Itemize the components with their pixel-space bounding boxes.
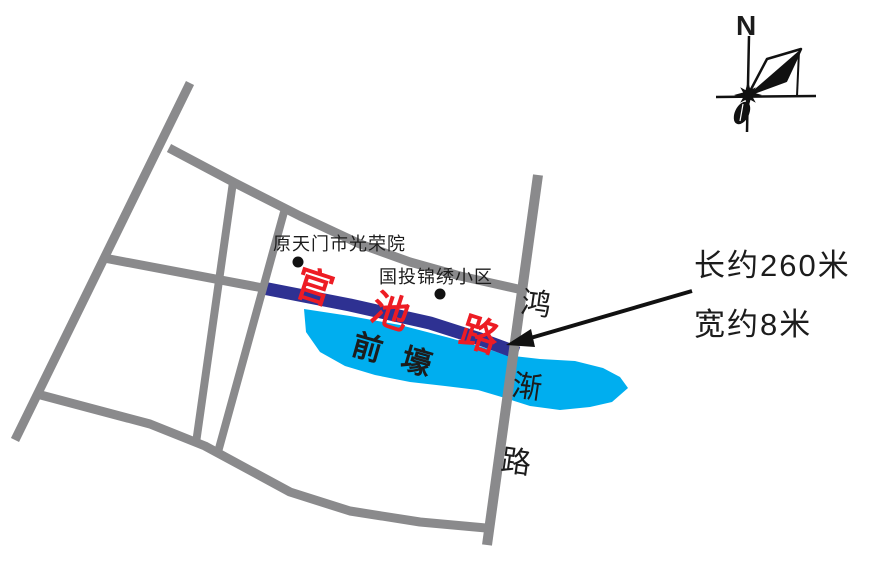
compass-north-label: N: [736, 12, 756, 40]
hongjian-char-3: 路: [499, 446, 533, 480]
annotation-length: 长约260米: [694, 250, 851, 281]
community-dot: [435, 289, 446, 300]
road-bottom-curve: [37, 394, 486, 528]
road-mid-connector: [104, 258, 263, 288]
annotation-width: 宽约8米: [694, 309, 812, 340]
road-west-diagonal: [15, 83, 190, 440]
poi-label-community: 国投锦绣小区: [379, 268, 493, 286]
hongjian-char-1: 鸿: [519, 288, 553, 322]
map-canvas: N 原天门市光荣院 国投锦绣小区 官 池 路 前 壕 鸿 渐 路 长约260米 …: [0, 0, 870, 561]
compass-rose: [716, 36, 816, 132]
hongjian-char-2: 渐: [510, 371, 544, 405]
poi-label-gloryhouse: 原天门市光荣院: [273, 235, 406, 253]
